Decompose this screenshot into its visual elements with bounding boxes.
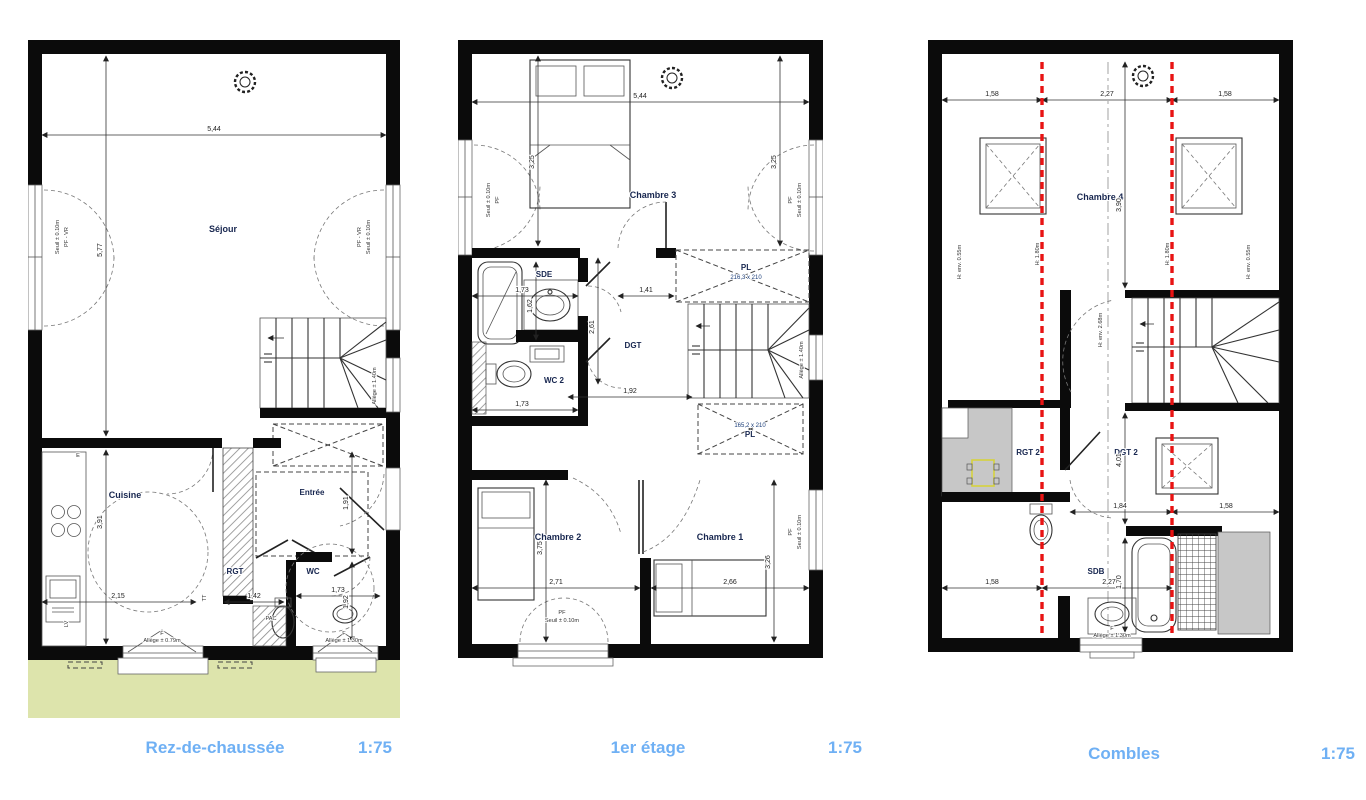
- plan-title-rdc: Rez-de-chaussée: [146, 738, 285, 758]
- dim-label: 2,71: [549, 579, 563, 586]
- staircase: [688, 304, 809, 398]
- kitchen-fixtures: [42, 452, 208, 646]
- annotation-lv: LV: [64, 621, 70, 628]
- dim-label: 3,90: [1116, 198, 1123, 212]
- bathtub: [478, 262, 522, 344]
- dim-label: 5,44: [207, 126, 221, 133]
- plan-title-combles: Combles: [1088, 744, 1160, 764]
- room-label-ch3: Chambre 3: [630, 190, 677, 200]
- annotation-e: E: [76, 453, 80, 459]
- room-label-ch2: Chambre 2: [535, 532, 582, 542]
- dim-label: 3,26: [765, 555, 772, 569]
- window-right: [386, 185, 400, 330]
- dim-label: 1,92: [343, 595, 350, 609]
- room-label-dgt: DGT: [625, 341, 642, 350]
- window-bottom: [1080, 638, 1142, 658]
- dim-label: 3,25: [529, 155, 536, 169]
- etage1-drawing: [458, 40, 823, 666]
- plan-title-etage1: 1er étage: [611, 738, 686, 758]
- entry-closet: [273, 424, 383, 466]
- skylight-mid: [1156, 438, 1218, 494]
- plan-scale-etage1: 1:75: [828, 738, 862, 758]
- window-right: [809, 140, 823, 255]
- room-label-sde: SDE: [536, 270, 553, 279]
- annotation-pl1-size: 216,3 x 210: [730, 275, 762, 281]
- skylight-left: [980, 138, 1046, 214]
- dim-label: 4,01: [1116, 453, 1123, 467]
- dim-label: 1,62: [527, 299, 534, 313]
- skylight-bath: [1178, 534, 1216, 630]
- dim-label: 2,61: [589, 320, 596, 334]
- window-left: [28, 185, 42, 330]
- annotation-allege: Allège ± 1.40m: [799, 341, 805, 379]
- skylight-right: [1176, 138, 1242, 214]
- annotation-allege: Allège ± 1.30m: [325, 638, 363, 644]
- annotation-allege: Allège ± 0.79m: [143, 638, 181, 644]
- room-label-rgt: RGT: [227, 567, 244, 576]
- hand-basin: [530, 346, 564, 362]
- double-bed: [530, 60, 630, 208]
- annotation-seuil: Seuil ± 0.10m: [797, 183, 803, 218]
- annotation-pf: PF: [788, 196, 794, 204]
- entree-zone: [256, 472, 368, 556]
- dim-label: 1,58: [985, 579, 999, 586]
- annotation-h055: H: env. 0.55m: [957, 244, 963, 279]
- placard-2: [698, 404, 803, 454]
- dim-label: 1,58: [985, 91, 999, 98]
- annotation-pf: PF: [788, 528, 794, 536]
- dim-label: 1,92: [623, 388, 637, 395]
- room-label-ch1: Chambre 1: [697, 532, 744, 542]
- floorplan-sheet: Séjour Cuisine Entrée RGT WC PAC 5,44 5,…: [0, 0, 1366, 800]
- annotation-seuil: Seuil ± 0.10m: [486, 183, 492, 218]
- plan-scale-rdc: 1:75: [358, 738, 392, 758]
- room-label-rgt2: RGT 2: [1016, 448, 1040, 457]
- dim-label: 2,27: [1102, 579, 1116, 586]
- annotation-seuil: Seuil ± 0.10m: [55, 220, 61, 255]
- front-door-opening: [386, 468, 400, 530]
- room-label-pl2: PL: [745, 430, 755, 439]
- dim-label: 1,70: [1116, 575, 1123, 589]
- ceiling-symbol: [235, 72, 255, 92]
- dim-label: 1,42: [247, 593, 261, 600]
- dim-label: 1,58: [1219, 503, 1233, 510]
- annotation-allege: Allège ± 1.40m: [372, 367, 378, 405]
- room-label-entree: Entrée: [300, 488, 325, 497]
- plan-rez-de-chaussee: Séjour Cuisine Entrée RGT WC PAC 5,44 5,…: [28, 40, 403, 720]
- ceiling-symbol: [1133, 66, 1153, 86]
- annotation-pf-vr: PF - VR: [64, 227, 70, 247]
- dim-label: 2,27: [1100, 91, 1114, 98]
- pac-zone: [253, 606, 286, 646]
- room-label-cuisine: Cuisine: [109, 490, 142, 500]
- annotation-pf: PF: [495, 196, 501, 204]
- staircase: [1132, 298, 1279, 403]
- annotation-pf-vr: PF - VR: [357, 227, 363, 247]
- dim-label: 1,58: [1218, 91, 1232, 98]
- annotation-allege: Allège ± 1.30m: [1093, 633, 1131, 639]
- dim-label: 1,73: [331, 587, 345, 594]
- room-label-wc2: WC 2: [544, 376, 565, 385]
- staircase: [260, 318, 386, 408]
- dim-label: 5,44: [633, 93, 647, 100]
- annotation-pf: PF: [558, 610, 566, 616]
- single-bed-ch2: [478, 488, 534, 600]
- dim-label: 1,73: [515, 401, 529, 408]
- dim-label: 1,73: [515, 287, 529, 294]
- rdc-drawing: [28, 40, 400, 718]
- annotation-h055: H: env. 0.55m: [1246, 244, 1252, 279]
- dim-label: 3,91: [97, 515, 104, 529]
- annotation-f: F: [160, 631, 164, 637]
- annotation-seuil: Seuil ± 0.10m: [797, 515, 803, 550]
- annotation-pl2-size: 165,2 x 210: [734, 423, 766, 429]
- window-stair: [809, 335, 823, 380]
- room-label-sejour: Séjour: [209, 224, 238, 234]
- annotation-tt: TT: [202, 594, 208, 601]
- plan-1er-etage: Chambre 3 SDE WC 2 DGT Chambre 2 Chambre…: [458, 40, 823, 668]
- dim-label: 3,25: [771, 155, 778, 169]
- dim-label: 1,84: [1113, 503, 1127, 510]
- toilet: [486, 361, 531, 387]
- dim-label: 3,75: [537, 541, 544, 555]
- dim-label: 2,66: [723, 579, 737, 586]
- room-label-sdb: SDB: [1088, 567, 1105, 576]
- room-label-pl1: PL: [741, 263, 751, 272]
- annotation-f: F: [342, 631, 346, 637]
- plan-scale-combles: 1:75: [1321, 744, 1355, 764]
- annotation-f: F: [1110, 626, 1114, 632]
- combles-drawing: [928, 40, 1293, 658]
- dim-label: 2,15: [111, 593, 125, 600]
- room-label-pac: PAC: [265, 616, 276, 622]
- window-bottom: [513, 644, 613, 666]
- dim-label: 5,77: [97, 243, 104, 257]
- ceiling-symbol: [662, 68, 682, 88]
- annotation-h180: H: 1.80m: [1165, 242, 1171, 265]
- dim-label: 1,91: [343, 496, 350, 510]
- annotation-h268: H: env. 2.68m: [1098, 312, 1104, 347]
- dim-label: 1,41: [639, 287, 653, 294]
- rdc-labels: Séjour Cuisine Entrée RGT WC PAC 5,44 5,…: [55, 126, 378, 644]
- window-stair: [386, 358, 400, 412]
- low-height-zone: [1218, 532, 1270, 634]
- window-right-low: [809, 490, 823, 570]
- annotation-seuil: Seuil ± 0.10m: [545, 618, 580, 624]
- bathtub: [1132, 538, 1176, 632]
- plan-combles: Chambre 4 RGT 2 DGT 2 SDB 1,58 2,27 1,58…: [928, 40, 1293, 660]
- room-label-wc: WC: [306, 567, 320, 576]
- window-left: [458, 140, 472, 255]
- annotation-seuil: Seuil ± 0.10m: [366, 220, 372, 255]
- annotation-h180: H: 1.80m: [1035, 242, 1041, 265]
